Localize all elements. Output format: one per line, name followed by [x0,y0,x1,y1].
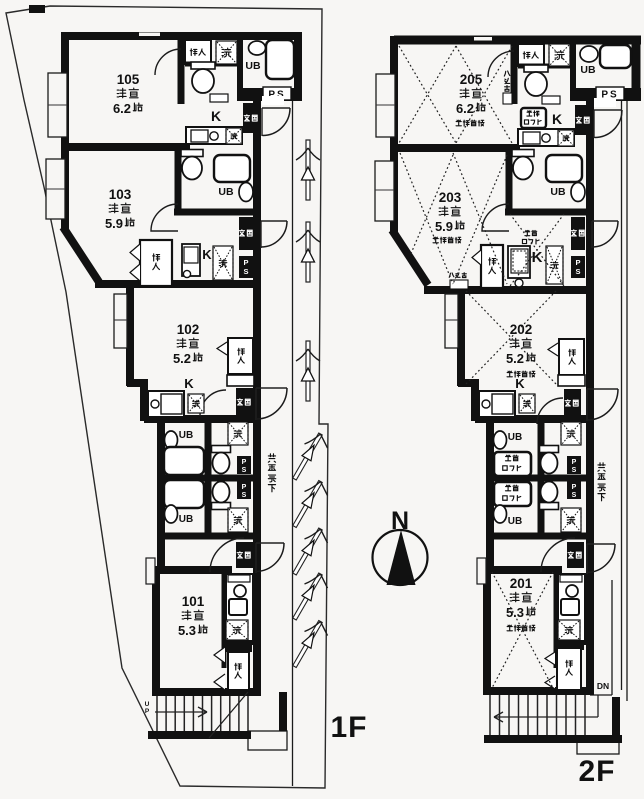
svg-text:N: N [391,507,409,535]
svg-text:2F: 2F [578,755,615,788]
svg-text:K: K [532,249,543,266]
svg-text:P: P [242,484,247,491]
svg-text:101: 101 [182,594,205,609]
svg-text:K: K [515,376,525,391]
svg-text:5.2: 5.2 [173,351,191,366]
svg-text:105: 105 [117,72,140,87]
svg-text:P: P [575,258,580,267]
svg-text:202: 202 [510,322,533,337]
svg-text:K: K [202,247,212,262]
svg-text:S: S [242,467,247,474]
svg-text:102: 102 [177,322,200,337]
svg-text:S: S [572,467,577,474]
svg-text:5.3: 5.3 [506,605,524,620]
svg-text:5.9: 5.9 [435,219,453,234]
svg-text:103: 103 [109,187,132,202]
svg-text:203: 203 [439,190,462,205]
svg-text:S: S [243,267,248,276]
svg-text:UB: UB [179,430,193,441]
svg-text:DN: DN [597,681,609,691]
svg-text:S: S [575,267,580,276]
svg-text:UB: UB [508,432,522,443]
svg-text:205: 205 [460,72,483,87]
svg-text:P: P [243,258,248,267]
svg-text:6.2: 6.2 [456,101,474,116]
svg-text:UB: UB [580,64,596,76]
svg-text:1F: 1F [330,711,367,744]
svg-text:UB: UB [179,514,193,525]
svg-text:5.9: 5.9 [105,216,123,231]
svg-text:5.2: 5.2 [506,351,524,366]
svg-text:K: K [211,108,221,124]
svg-text:P: P [572,459,577,466]
svg-text:K: K [552,111,562,127]
svg-text:5.3: 5.3 [178,623,196,638]
svg-text:P: P [572,484,577,491]
svg-text:S: S [572,492,577,499]
svg-text:UB: UB [245,60,261,72]
svg-text:UB: UB [218,186,234,198]
svg-text:S: S [242,492,247,499]
svg-text:K: K [184,376,194,391]
svg-text:UB: UB [550,186,566,198]
svg-text:U: U [145,701,150,708]
svg-text:201: 201 [510,576,533,591]
svg-text:P: P [145,708,150,715]
svg-text:UB: UB [508,516,522,527]
svg-text:6.2: 6.2 [113,101,131,116]
svg-text:P: P [242,459,247,466]
